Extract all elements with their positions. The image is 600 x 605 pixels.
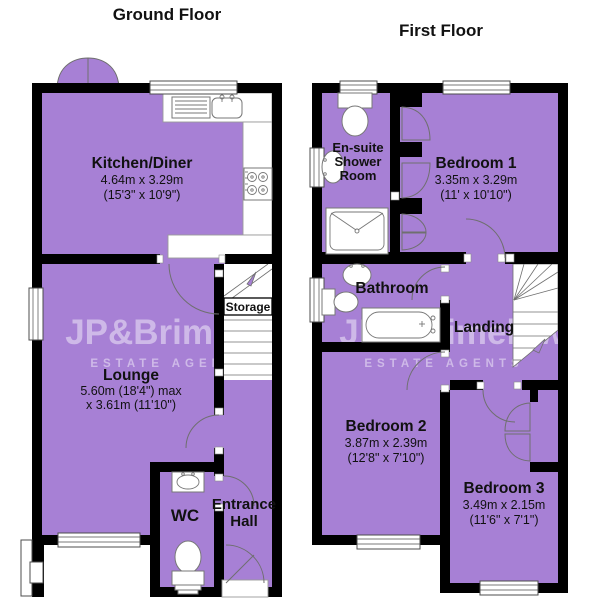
wardrobe-stub-2 bbox=[400, 142, 422, 157]
floorplan-page: JP&Brimelow ESTATE AGENTS bbox=[0, 0, 600, 600]
stairs-ground bbox=[224, 264, 272, 380]
bedroom3-dims-imperial: (11'6" x 7'1") bbox=[469, 513, 538, 527]
kitchen-stairs-wall bbox=[225, 254, 272, 264]
wc-left-wall bbox=[150, 472, 160, 545]
floorplan-svg: JP&Brimelow ESTATE AGENTS bbox=[0, 0, 600, 600]
first-floor-title: First Floor bbox=[399, 21, 483, 40]
bedroom2-label: Bedroom 2 bbox=[346, 418, 427, 435]
lounge-dims-imperial: x 3.61m (11'10") bbox=[86, 398, 176, 412]
wc-basin-icon bbox=[172, 472, 204, 492]
lounge-dims-metric: 5.60m (18'4") max bbox=[80, 384, 182, 398]
bathroom-bedroom2-wall bbox=[312, 342, 450, 352]
front-door-threshold bbox=[222, 580, 268, 597]
watermark-tagline-2: ESTATE AGENTS bbox=[364, 358, 523, 370]
kitchen-dims-imperial: (15'3" x 10'9") bbox=[104, 188, 181, 202]
bedroom3-wardrobe-stub-bottom bbox=[530, 462, 558, 472]
bathroom-landing-wall bbox=[440, 300, 450, 342]
bedroom2-dims-imperial: (12'8" x 7'10") bbox=[348, 451, 425, 465]
first-floor-plan: JP&Brimelow ESTATE AGENTS bbox=[310, 21, 568, 595]
ground-floor-plan: JP&Brimelow ESTATE AGENTS bbox=[21, 5, 292, 597]
bathroom-label: Bathroom bbox=[355, 280, 428, 297]
wardrobe-stub-3 bbox=[400, 198, 422, 214]
kitchen-lounge-wall bbox=[42, 254, 160, 264]
bedroom3-dims-metric: 3.49m x 2.15m bbox=[463, 498, 546, 512]
ensuite-label-3: Room bbox=[340, 168, 377, 183]
bedroom3-wardrobe-stub-top bbox=[530, 390, 538, 402]
stairs-side-wall bbox=[214, 264, 224, 380]
bedroom2-dims-metric: 3.87m x 2.39m bbox=[345, 436, 428, 450]
entrance-hall-label-1: Entrance bbox=[212, 496, 276, 513]
wc-top-wall bbox=[150, 462, 224, 472]
bedroom1-bottom-wall-left bbox=[400, 252, 466, 264]
landing-label: Landing bbox=[454, 319, 514, 336]
kitchen-label: Kitchen/Diner bbox=[92, 155, 193, 172]
storage-label: Storage bbox=[226, 300, 271, 314]
bedroom3-top-wall-right bbox=[522, 380, 558, 390]
shower-tray-icon bbox=[326, 208, 388, 254]
entrance-hall-label-2: Hall bbox=[230, 513, 258, 530]
wardrobe-stub-1 bbox=[400, 93, 422, 107]
ensuite-right-wall bbox=[390, 93, 400, 262]
ensuite-label-2: Shower bbox=[335, 154, 382, 169]
kitchen-dims-metric: 4.64m x 3.29m bbox=[101, 173, 184, 187]
bedroom2-right-wall bbox=[440, 390, 450, 535]
wc-label: WC bbox=[171, 506, 199, 525]
bedroom1-dims-imperial: (11' x 10'10") bbox=[440, 188, 512, 202]
bedroom1-dims-metric: 3.35m x 3.29m bbox=[435, 173, 518, 187]
ensuite-label-1: En-suite bbox=[332, 140, 383, 155]
bedroom3-label: Bedroom 3 bbox=[464, 480, 545, 497]
hob-icon bbox=[244, 168, 272, 200]
ground-floor-title: Ground Floor bbox=[113, 5, 222, 24]
kitchen-sink-icon bbox=[172, 95, 242, 118]
wc-hall-wall bbox=[214, 506, 224, 587]
bedroom1-label: Bedroom 1 bbox=[436, 155, 517, 172]
bath-icon bbox=[362, 308, 440, 342]
lounge-label: Lounge bbox=[103, 367, 159, 384]
